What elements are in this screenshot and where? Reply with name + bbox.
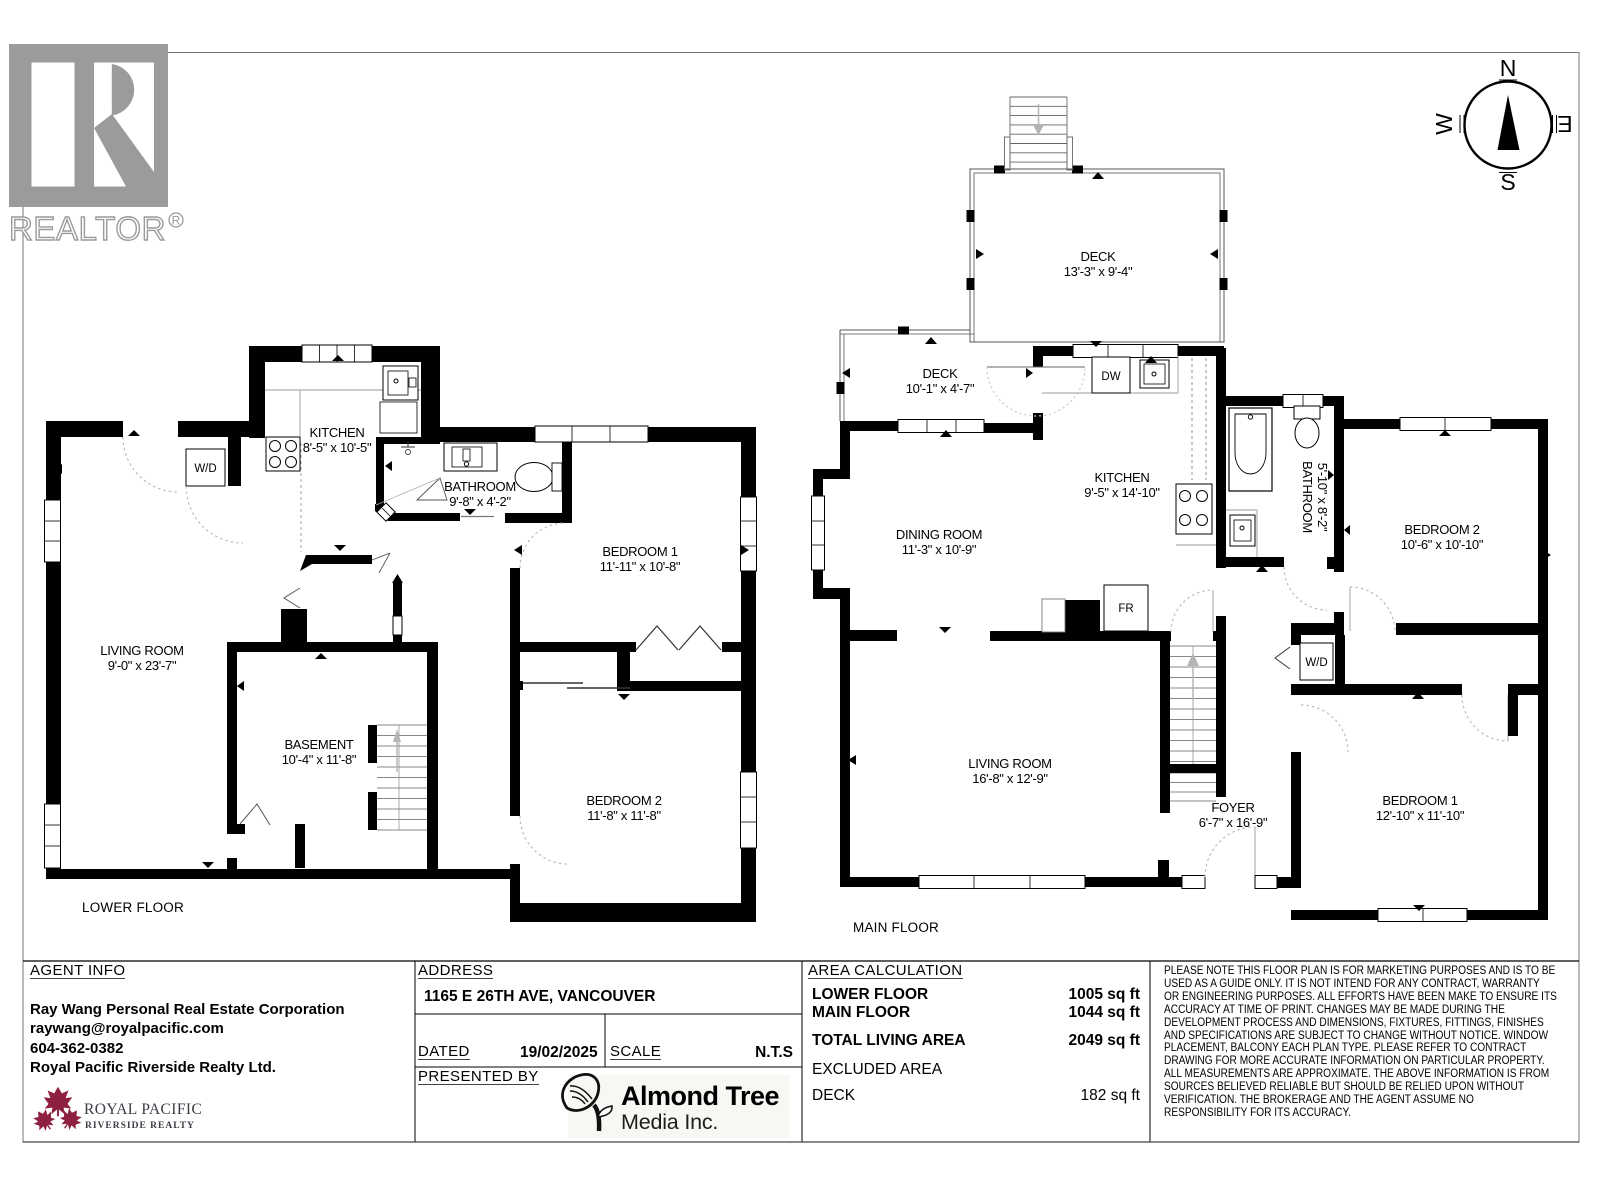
svg-text:5'-10" x 8'-2": 5'-10" x 8'-2" [1315, 463, 1330, 532]
svg-text:W: W [1431, 113, 1457, 135]
svg-text:LOWER FLOOR: LOWER FLOOR [82, 900, 184, 915]
svg-text:12'-10" x 11'-10": 12'-10" x 11'-10" [1376, 808, 1465, 823]
svg-text:DW: DW [1101, 371, 1120, 383]
svg-text:DINING ROOM: DINING ROOM [896, 527, 982, 542]
svg-text:REALTOR: REALTOR [9, 210, 166, 247]
svg-text:E: E [1557, 111, 1572, 137]
svg-text:N: N [1500, 55, 1517, 81]
svg-text:FR: FR [1118, 603, 1133, 615]
svg-text:DECK: DECK [923, 366, 959, 381]
svg-text:13'-3" x 9'-4": 13'-3" x 9'-4" [1064, 264, 1133, 279]
svg-text:BEDROOM 1: BEDROOM 1 [602, 544, 677, 559]
svg-text:RIVERSIDE REALTY: RIVERSIDE REALTY [85, 1121, 195, 1131]
svg-text:W/D: W/D [1305, 657, 1327, 669]
svg-text:BEDROOM 2: BEDROOM 2 [1404, 522, 1479, 537]
svg-text:ROYAL PACIFIC: ROYAL PACIFIC [84, 1101, 202, 1118]
svg-text:LIVING ROOM: LIVING ROOM [100, 643, 183, 658]
svg-text:FOYER: FOYER [1211, 800, 1254, 815]
svg-text:10'-6" x 10'-10": 10'-6" x 10'-10" [1401, 537, 1484, 552]
svg-text:9'-0" x 23'-7": 9'-0" x 23'-7" [108, 658, 177, 673]
svg-text:11'-3" x 10'-9": 11'-3" x 10'-9" [902, 542, 977, 557]
svg-text:KITCHEN: KITCHEN [1095, 470, 1150, 485]
svg-text:9'-5" x 14'-10": 9'-5" x 14'-10" [1084, 485, 1160, 500]
svg-text:BEDROOM 2: BEDROOM 2 [586, 793, 661, 808]
svg-text:11'-11" x 10'-8": 11'-11" x 10'-8" [600, 559, 681, 574]
svg-text:R: R [172, 214, 181, 228]
svg-text:16'-8" x 12'-9": 16'-8" x 12'-9" [972, 771, 1048, 786]
svg-text:KITCHEN: KITCHEN [310, 425, 365, 440]
svg-text:LIVING ROOM: LIVING ROOM [968, 756, 1051, 771]
svg-text:9'-8" x 4'-2": 9'-8" x 4'-2" [449, 494, 511, 509]
svg-text:BATHROOM: BATHROOM [1300, 461, 1315, 533]
svg-text:MAIN FLOOR: MAIN FLOOR [853, 920, 939, 935]
svg-text:BEDROOM 1: BEDROOM 1 [1382, 793, 1457, 808]
svg-text:W/D: W/D [194, 463, 216, 475]
svg-text:11'-8" x 11'-8": 11'-8" x 11'-8" [587, 808, 661, 823]
svg-text:8'-5" x 10'-5": 8'-5" x 10'-5" [303, 440, 372, 455]
svg-text:BASEMENT: BASEMENT [284, 737, 353, 752]
svg-text:10'-1" x 4'-7": 10'-1" x 4'-7" [906, 381, 975, 396]
svg-text:6'-7" x 16'-9": 6'-7" x 16'-9" [1199, 815, 1268, 830]
svg-text:BATHROOM: BATHROOM [444, 479, 516, 494]
svg-text:DECK: DECK [1081, 249, 1117, 264]
svg-text:10'-4" x 11'-8": 10'-4" x 11'-8" [282, 752, 357, 767]
